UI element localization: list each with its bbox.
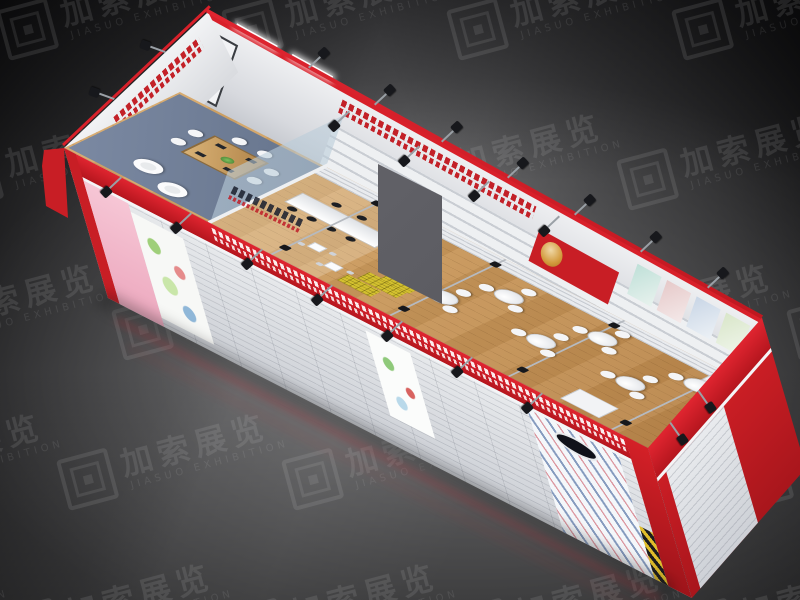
watermark-en: JIASUO EXHIBITION (0, 588, 10, 600)
jiasuo-logo-icon (0, 0, 60, 61)
exhibition-booth-render: 加索展览JIASUO EXHIBITION加索展览JIASUO EXHIBITI… (0, 0, 800, 600)
emblem-badge-icon (538, 238, 566, 271)
